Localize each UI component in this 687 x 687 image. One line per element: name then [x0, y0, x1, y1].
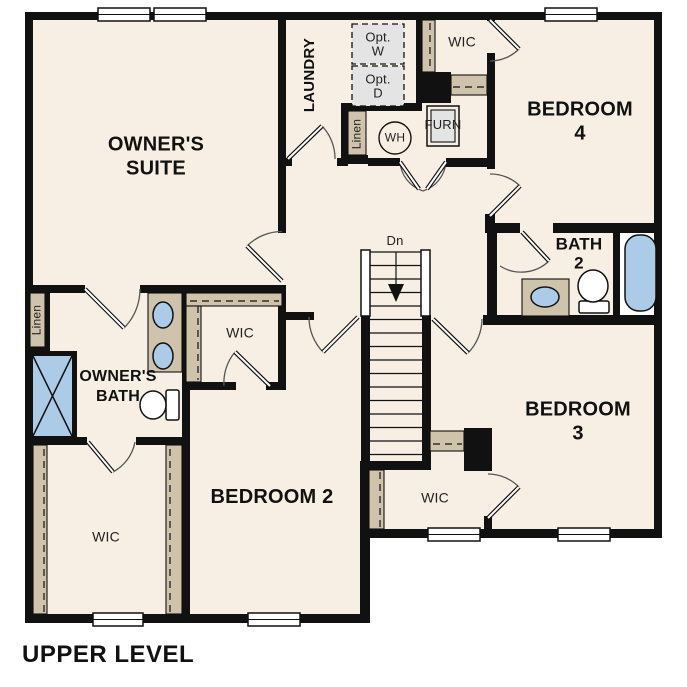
label-opt-dryer: Opt. D [365, 72, 390, 99]
wic-top-shelf [422, 20, 435, 72]
wic-mid-shelf-top [186, 293, 282, 306]
wic-bedroom3-shelf [369, 470, 384, 529]
window [558, 528, 610, 541]
label-wic-owners: WIC [92, 528, 120, 545]
label-water-heater: WH [385, 131, 405, 146]
label-owners-suite: OWNER'S SUITE [108, 133, 204, 182]
wic-mid-shelf-left [186, 306, 201, 382]
label-linen-hall: Linen [350, 119, 365, 149]
plan-title: UPPER LEVEL [22, 641, 194, 669]
stair-rail-right [421, 250, 430, 316]
stair-rail-left [361, 250, 370, 316]
toilet-bath2 [578, 270, 609, 313]
label-furnace: FURN [425, 117, 462, 133]
label-bedroom3: BEDROOM 3 [524, 398, 633, 447]
wic-owners-shelf-left [33, 445, 47, 614]
label-opt-washer: Opt. W [365, 30, 390, 57]
window [248, 613, 300, 626]
label-bedroom2: BEDROOM 2 [211, 485, 334, 509]
wic-owners-shelf-right [166, 445, 182, 614]
label-bath2: BATH 2 [556, 235, 603, 272]
sink [153, 343, 173, 369]
label-bedroom4: BEDROOM 4 [527, 98, 634, 147]
window [98, 8, 150, 21]
label-stairs-dn: Dn [386, 233, 403, 249]
window [428, 528, 480, 541]
window [154, 8, 206, 21]
window [93, 613, 143, 626]
window [545, 8, 597, 21]
shower [28, 351, 77, 441]
sink [153, 302, 173, 328]
label-wic-mid: WIC [226, 324, 254, 341]
hall-shelf [451, 75, 487, 95]
label-linen-bath: Linen [30, 305, 45, 335]
wic-bedroom3-nook-shelf [430, 431, 464, 451]
floor-plan-page: OWNER'S SUITE LAUNDRY Opt. W Opt. D WIC … [0, 0, 687, 687]
label-wic-top: WIC [448, 33, 476, 50]
label-wic-bedroom3: WIC [421, 489, 449, 506]
label-owners-bath: OWNER'S BATH [79, 367, 156, 407]
label-laundry: LAUNDRY [301, 38, 319, 112]
bathtub [625, 235, 656, 311]
sink-bath2 [531, 287, 559, 307]
